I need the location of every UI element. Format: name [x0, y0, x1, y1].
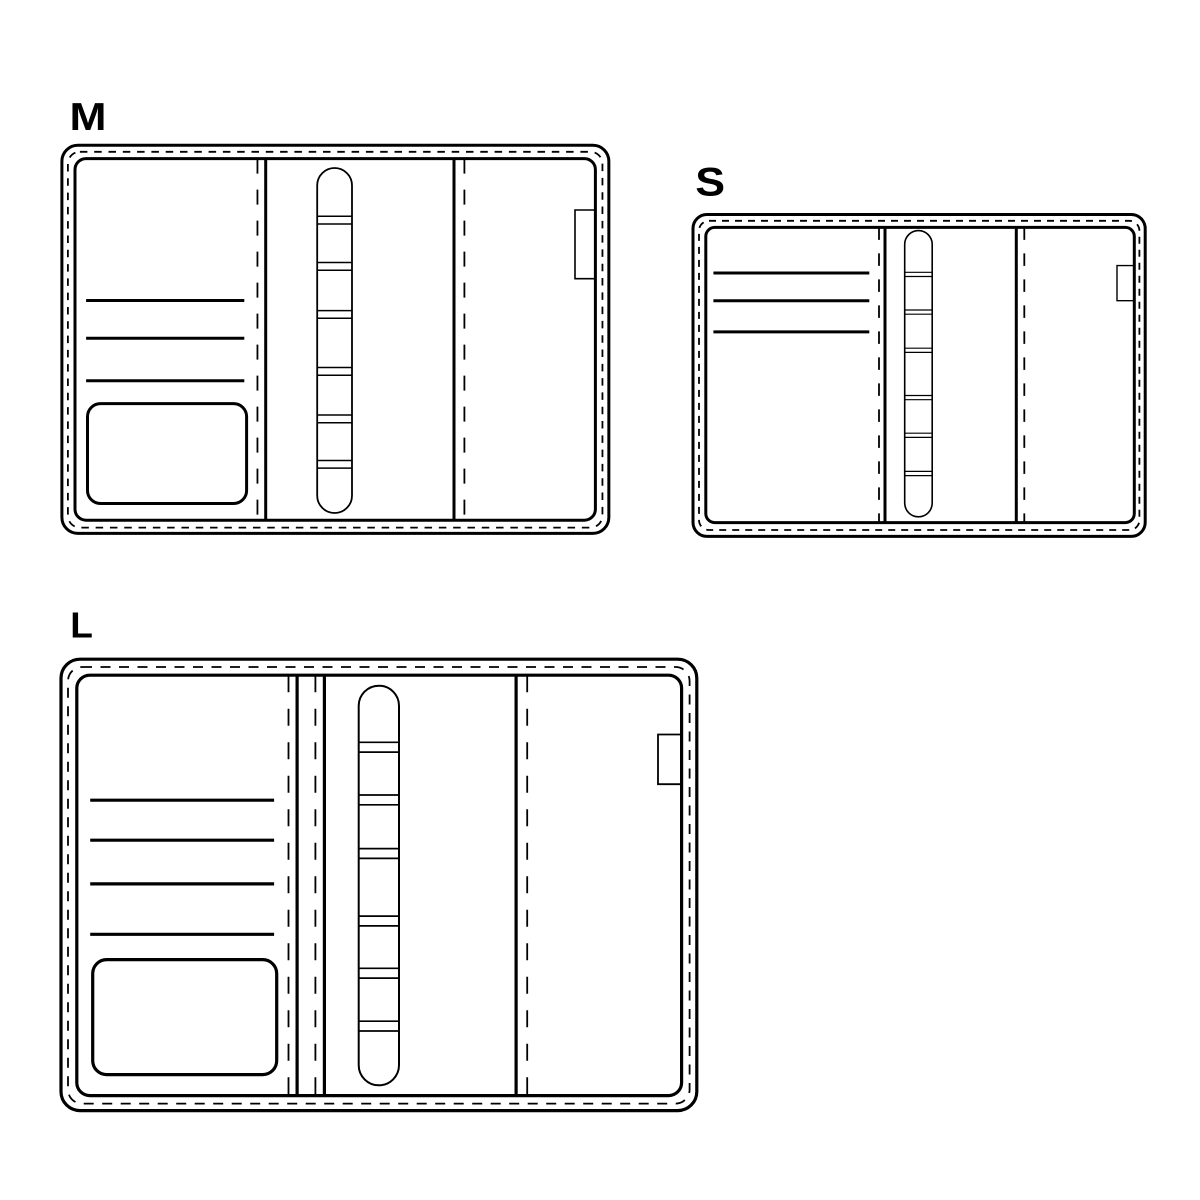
- svg-text:L: L: [70, 605, 93, 645]
- svg-text:S: S: [695, 160, 725, 204]
- svg-text:M: M: [70, 95, 107, 139]
